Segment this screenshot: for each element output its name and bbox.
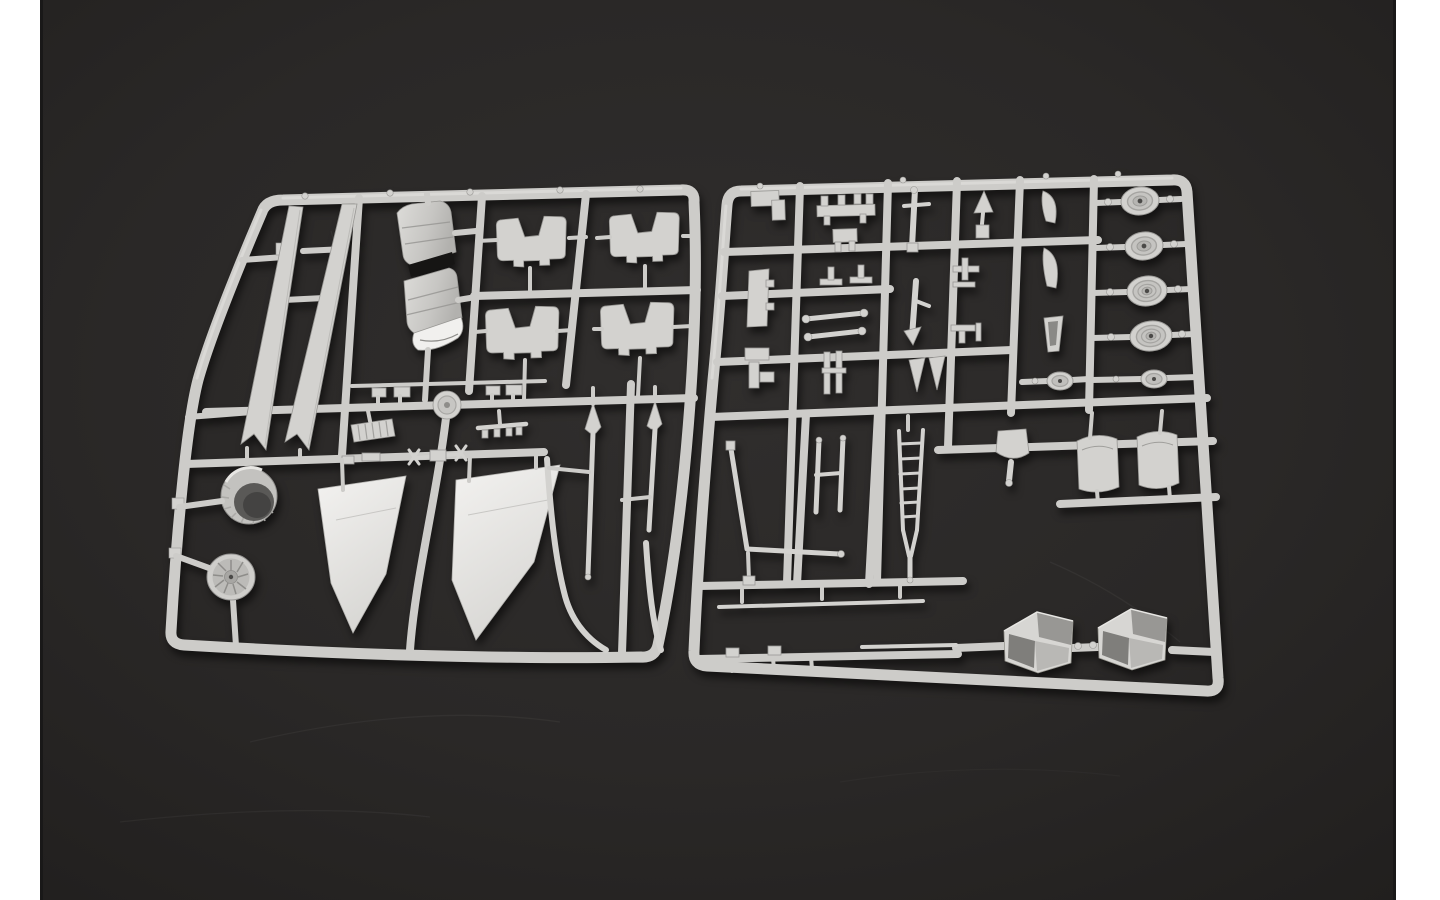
bracket-tooth: [516, 427, 522, 435]
sprue-nub: [1171, 241, 1178, 248]
linkage-end: [804, 333, 812, 341]
sprue-nub: [585, 574, 591, 580]
sprue-nub: [1043, 173, 1049, 179]
cross-part: [962, 258, 968, 280]
road-wheel-small-part: [1141, 370, 1167, 388]
sprue-nub: [1108, 334, 1115, 341]
sprue-nub: [816, 437, 822, 443]
fan-hub-dot: [229, 575, 233, 579]
manifold-tooth: [821, 196, 828, 206]
cross-part: [953, 282, 975, 287]
bracket-prong: [849, 241, 855, 251]
sprue-nub: [637, 186, 643, 192]
twin-rod-crossbar: [816, 473, 841, 475]
sprue-nub: [757, 183, 763, 189]
sprue-nub: [1006, 480, 1013, 487]
sprue-stub: [499, 411, 500, 424]
manifold-tooth: [838, 195, 845, 205]
small-bracket-part: [745, 348, 769, 360]
manifold-tooth: [866, 194, 873, 204]
sprue-nub: [907, 577, 913, 583]
manifold-leg: [860, 214, 866, 223]
l-profile-foot: [726, 441, 735, 450]
saddle-panel-part: [1137, 431, 1179, 488]
sprue-nub: [840, 435, 846, 441]
small-bracket-part: [749, 362, 759, 388]
t-part: [976, 323, 981, 341]
sprue-nub: [838, 551, 845, 558]
small-bracket-part: [743, 576, 755, 585]
left-white-bar: [0, 0, 40, 900]
sprue-nub: [900, 177, 906, 183]
small-bracket-part: [976, 225, 989, 238]
small-bracket-part: [833, 229, 857, 243]
bracket-tooth: [482, 430, 488, 438]
linkage-end: [858, 327, 866, 335]
sprue-nub: [1032, 378, 1038, 384]
sprue-rail: [699, 581, 963, 586]
plate-part: [747, 269, 769, 327]
funnel-stem: [1009, 462, 1011, 481]
sprue-nub: [1107, 289, 1114, 296]
linkage-end: [860, 309, 868, 317]
wheel-hub-dot: [1152, 377, 1156, 381]
small-bracket-part: [760, 372, 774, 382]
small-detail-part: [362, 453, 380, 461]
sprue-nub: [1075, 643, 1082, 650]
plate-tab: [766, 280, 774, 287]
sprue-nub: [302, 193, 308, 199]
boss-center: [444, 402, 450, 408]
sprue-nub: [1175, 286, 1182, 293]
small-bracket-part: [726, 648, 739, 657]
t-part: [951, 325, 975, 331]
sprue-stub: [284, 298, 324, 300]
sprue-nub: [557, 187, 563, 193]
t-part: [959, 331, 965, 343]
nozzle-cavity-deep: [243, 492, 271, 518]
sprue-stub: [242, 257, 284, 260]
right-bar-edge: [1393, 0, 1396, 900]
sprue-nub: [1179, 331, 1186, 338]
small-bracket-part: [772, 200, 786, 220]
linkage-end: [802, 315, 810, 323]
landing-gear-strut-part: [912, 189, 915, 247]
bracket-tooth: [494, 429, 500, 437]
pipe-part: [858, 265, 864, 278]
road-wheel-small-part: [1047, 372, 1073, 390]
right-white-bar: [1396, 0, 1440, 900]
funnel-intake-part: [996, 429, 1029, 458]
saddle-panel-part: [1077, 435, 1119, 492]
sprue-nub: [1090, 642, 1097, 649]
small-detail-part: [430, 450, 446, 461]
thin-rod-part: [862, 645, 956, 647]
bracket-tooth: [506, 428, 512, 436]
sprue-nub: [1113, 376, 1119, 382]
wheel-hub-dot: [1058, 379, 1062, 383]
strut-foot: [907, 243, 918, 252]
sprue-stub: [368, 411, 370, 421]
charcoal-surface: [40, 0, 1397, 900]
pipe-part: [828, 267, 834, 280]
sprue-nub: [1105, 199, 1112, 206]
sprue-nub: [911, 187, 918, 194]
bracket-prong: [835, 242, 841, 252]
sprue-nub: [467, 189, 473, 195]
strut-crossbar: [904, 204, 929, 206]
sprue-nub: [387, 190, 393, 196]
sprue-nub: [1167, 196, 1174, 203]
plate-tab: [766, 303, 774, 310]
manifold-leg: [824, 216, 830, 225]
photo-stage: [0, 0, 1440, 900]
fork-crossbar: [822, 368, 846, 373]
manifold-tooth: [854, 194, 861, 204]
small-bracket-part: [768, 646, 781, 655]
cone-stem: [982, 213, 983, 224]
left-bar-edge: [40, 0, 43, 900]
sprue-photo: [0, 0, 1440, 900]
small-detail-part: [394, 387, 410, 397]
sprue-stub: [233, 600, 236, 646]
sprue-nub: [1115, 171, 1121, 177]
sprue-nub: [1107, 244, 1114, 251]
